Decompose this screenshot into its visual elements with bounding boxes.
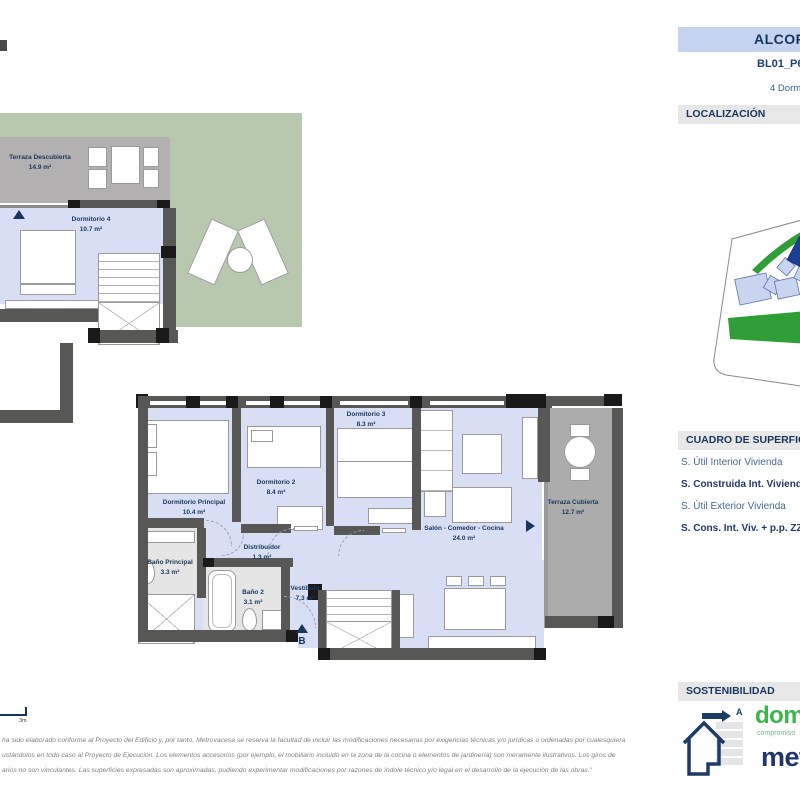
surface-row: S. Cons. Int. Viv. + p.p. ZZCC xyxy=(681,523,800,534)
column-marker xyxy=(320,396,332,408)
kitchen-counter xyxy=(522,417,538,479)
scale-bar-label: 3m xyxy=(19,718,27,724)
surface-row: S. Construida Int. Vivienda xyxy=(681,479,800,490)
column-marker xyxy=(156,328,169,343)
chair xyxy=(570,468,590,481)
plan-code: BL01_P6 xyxy=(757,58,800,70)
location-map xyxy=(700,182,800,396)
plan-sheet: Terraza Descubierta 14.9 m² Dormitorio 4… xyxy=(0,0,800,800)
column-marker xyxy=(186,396,200,408)
chair xyxy=(468,576,484,586)
terrace-table xyxy=(564,436,596,468)
sideboard xyxy=(5,300,108,309)
chair xyxy=(570,424,590,437)
disclaimer-line: arios no son vinculantes. Las superficie… xyxy=(2,767,592,774)
outdoor-table xyxy=(111,146,140,184)
window xyxy=(246,401,322,405)
room-label: Dormitorio Principal10.4 m² xyxy=(139,498,249,517)
pillow xyxy=(251,430,273,442)
corridor-floor xyxy=(0,322,60,422)
column-marker xyxy=(226,396,238,408)
room-label: Dormitorio 28.4 m² xyxy=(221,478,331,497)
door-leaf xyxy=(382,528,406,533)
window xyxy=(340,401,408,405)
bed xyxy=(337,428,413,462)
energy-rating: A xyxy=(736,707,743,717)
column-marker xyxy=(318,648,330,660)
disclaimer-line: ustándolos en todo caso al Proyecto de E… xyxy=(2,752,616,759)
dining-table xyxy=(444,588,506,630)
scale-bar xyxy=(0,714,27,716)
entrance-arrow xyxy=(296,624,308,633)
wall xyxy=(138,630,298,642)
column-marker xyxy=(506,394,546,408)
wall xyxy=(0,410,73,423)
wall xyxy=(538,408,550,482)
column-marker xyxy=(534,648,546,660)
garden-area xyxy=(168,113,302,327)
project-title: ALCOR xyxy=(754,31,800,47)
outdoor-seat xyxy=(143,147,159,167)
entrance-label: B xyxy=(292,636,312,647)
scale-bar-tick xyxy=(25,707,27,716)
room-label: Baño Principal3.3 m² xyxy=(115,558,225,577)
clipped-fragment xyxy=(0,40,7,51)
column-marker xyxy=(88,328,100,343)
room-label: Baño 23.1 m² xyxy=(198,588,308,607)
room-label: Terraza Cubierta12.7 m² xyxy=(518,498,628,517)
wall xyxy=(612,408,623,627)
section-header-superficies: CUADRO DE SUPERFICIES xyxy=(678,431,800,450)
window xyxy=(430,401,504,405)
chair xyxy=(490,576,506,586)
title-bar: ALCOR xyxy=(678,27,800,52)
kitchen-cabinets xyxy=(420,410,453,492)
rating-arrow xyxy=(702,713,722,719)
wall xyxy=(0,309,100,322)
section-header-sostenibilidad: SOSTENIBILIDAD xyxy=(678,682,800,701)
door-arrow xyxy=(13,210,25,219)
garden-table xyxy=(227,247,253,273)
door-leaf xyxy=(294,526,318,531)
washbasin xyxy=(262,610,282,630)
room-label: Terraza Descubierta 14.9 m² xyxy=(0,153,95,172)
wall xyxy=(138,518,204,528)
dresser xyxy=(368,508,414,524)
room-label: Dormitorio 38.3 m² xyxy=(311,410,421,429)
disclaimer-line: ha sido elaborado conforme al Proyecto d… xyxy=(2,737,625,744)
armchair xyxy=(424,491,446,517)
terrace-door-arrow xyxy=(526,520,535,532)
bed-foot xyxy=(20,284,76,295)
column-marker xyxy=(604,394,622,406)
stairs xyxy=(98,253,160,303)
outdoor-seat xyxy=(88,169,107,189)
section-header-localizacion: LOCALIZACIÓN xyxy=(678,105,800,124)
room-label: Salón - Comedor - Cocina24.0 m² xyxy=(409,524,519,543)
rating-arrow-head xyxy=(722,710,731,722)
surface-row: S. Útil Exterior Vivienda xyxy=(681,501,800,512)
outdoor-seat xyxy=(143,169,159,188)
sofa xyxy=(452,487,512,523)
wall xyxy=(163,208,176,332)
wall xyxy=(318,648,546,660)
column-marker xyxy=(161,246,176,258)
bed xyxy=(20,230,76,284)
column-marker xyxy=(270,396,284,408)
plan-subtitle: 4 Dormitorios xyxy=(770,83,800,94)
room-label: Dormitorio 4 10.7 m² xyxy=(36,215,146,234)
chair xyxy=(446,576,462,586)
kitchen-table xyxy=(462,434,502,474)
surface-row: S. Útil Interior Vivienda xyxy=(681,457,800,468)
brand-logo-blue: metrovacesa xyxy=(761,742,800,773)
washbasin-counter xyxy=(140,531,195,543)
column-marker xyxy=(410,396,422,408)
brand-logo-sub: compromiso xyxy=(757,730,795,737)
column-marker xyxy=(598,616,614,628)
toilet xyxy=(242,608,257,631)
brand-logo-green: dom xyxy=(755,702,800,730)
